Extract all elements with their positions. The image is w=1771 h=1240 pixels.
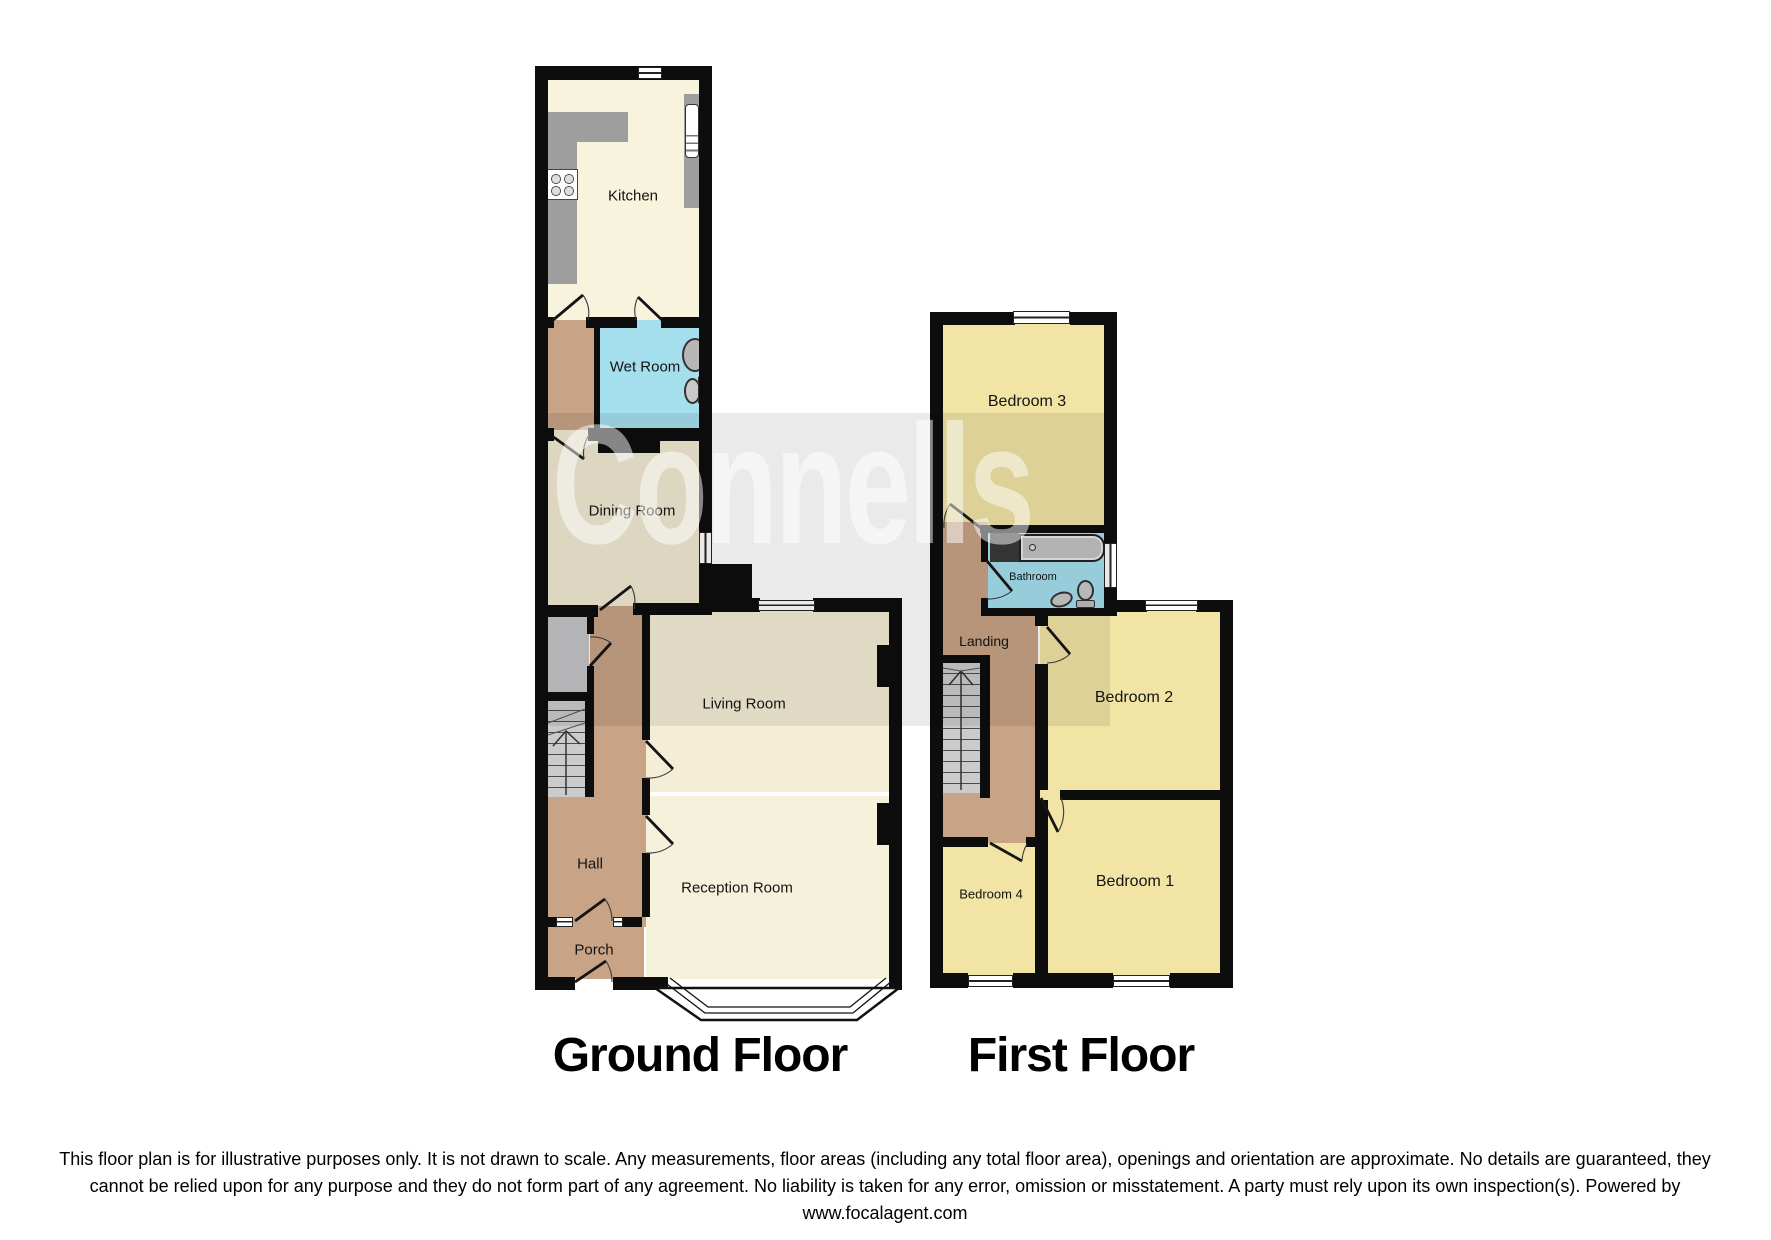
door-icon: [552, 295, 673, 982]
room-label-bedroom1: Bedroom 1: [1096, 873, 1174, 891]
room-label-living-room: Living Room: [702, 696, 785, 713]
room-label-bedroom3: Bedroom 3: [988, 393, 1066, 411]
room-label-dining-room: Dining Room: [589, 503, 676, 520]
room-label-reception-room: Reception Room: [681, 880, 793, 897]
door-arc-icon: [583, 295, 673, 982]
floorplan-canvas: Kitchen Wet Room Dining Room Living Room…: [0, 0, 1771, 1240]
ground-floor-title: Ground Floor: [553, 1028, 848, 1083]
disclaimer-text: This floor plan is for illustrative purp…: [35, 1146, 1735, 1227]
door-arc-icon: [944, 504, 1070, 861]
plan-annotations: [0, 0, 1771, 1240]
room-label-hall: Hall: [577, 856, 603, 873]
room-label-bathroom: Bathroom: [1009, 571, 1057, 583]
stairs-arrow-icon: [553, 671, 973, 795]
room-label-bedroom2: Bedroom 2: [1095, 689, 1173, 707]
room-label-wet-room: Wet Room: [610, 359, 681, 376]
first-floor-title: First Floor: [968, 1028, 1194, 1083]
room-label-porch: Porch: [574, 942, 613, 959]
bay-window-icon: [655, 978, 899, 1020]
room-label-landing: Landing: [959, 633, 1009, 649]
room-label-kitchen: Kitchen: [608, 188, 658, 205]
door-icon: [950, 504, 1070, 861]
room-label-bedroom4: Bedroom 4: [959, 887, 1023, 902]
